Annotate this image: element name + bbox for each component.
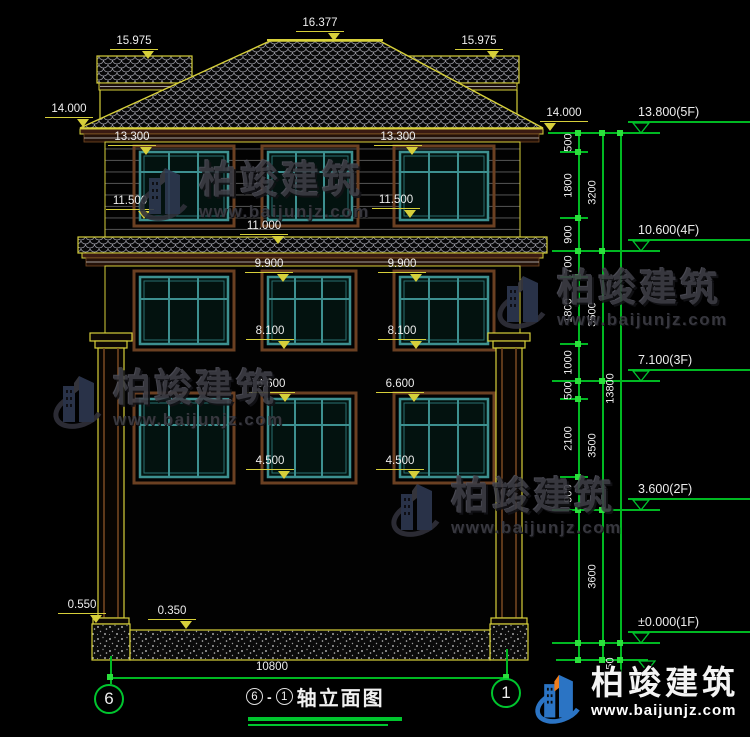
elevation-triangle-icon: [632, 122, 650, 134]
elevation-callout: 4.500: [376, 455, 424, 470]
watermark: 柏竣建筑www.baijunjz.com: [52, 366, 284, 436]
elevation-callout: 15.975: [455, 35, 503, 50]
elevation-callout: 4.500: [246, 455, 294, 470]
elevation-callout: 16.377: [296, 17, 344, 32]
watermark: 柏竣建筑www.baijunjz.com: [496, 266, 728, 336]
title-dash: -: [267, 689, 272, 705]
ground-slab: [130, 630, 490, 660]
baijun-logo-icon: [534, 664, 584, 732]
window: [134, 271, 234, 350]
elevation-callout: 8.100: [378, 325, 426, 340]
title-underline: [248, 724, 388, 726]
baijun-logo-icon: [52, 366, 106, 436]
drawing-title: 6 - 1 轴立面图: [246, 682, 385, 711]
elevation-callout: 8.100: [246, 325, 294, 340]
dim-tick: [575, 396, 581, 402]
elevation-callout: 9.900: [245, 258, 293, 273]
elevation-callout: 6.600: [376, 378, 424, 393]
elevation-triangle-icon: [632, 370, 650, 382]
title-underline: [248, 717, 402, 721]
dim-line: [620, 133, 622, 679]
baijun-logo-icon: [390, 474, 444, 544]
canopy: [78, 237, 547, 266]
grid-bubble-1: 1: [491, 678, 521, 708]
baijun-logo-icon: [138, 158, 192, 228]
dim-label: 500: [563, 369, 576, 413]
dim-label: 3600: [587, 555, 600, 599]
dim-label: 3500: [587, 424, 600, 468]
dim-tick: [575, 215, 581, 221]
watermark: 柏竣建筑www.baijunjz.com: [138, 158, 370, 228]
dim-tick: [575, 341, 581, 347]
dim-label: 500: [563, 121, 576, 165]
floor-elevation-marker: 13.800(5F): [578, 105, 750, 137]
floor-elevation-marker: 7.100(3F): [578, 353, 750, 385]
dim-tick: [107, 674, 113, 680]
axis-circle: 6: [246, 688, 263, 705]
cad-elevation-drawing: 16.377 15.975 15.975 14.000 14.000 13.30…: [0, 0, 750, 737]
dim-tick: [575, 149, 581, 155]
dim-label: 3200: [587, 171, 600, 215]
elevation-callout: 13.300: [108, 131, 156, 146]
title-text: 轴立面图: [297, 682, 385, 711]
elevation-callout: 0.350: [148, 605, 196, 620]
elevation-callout: 15.975: [110, 35, 158, 50]
brand-logo: 柏竣建筑www.baijunjz.com: [534, 664, 739, 732]
dim-tick: [575, 657, 581, 663]
elevation-callout: 0.550: [58, 599, 106, 614]
axis-circle: 1: [276, 688, 293, 705]
elevation-triangle-icon: [632, 499, 650, 511]
dim-label: 2100: [563, 417, 576, 461]
floor-elevation-marker: 10.600(4F): [578, 223, 750, 255]
dim-line: [110, 677, 507, 679]
elevation-callout: 9.900: [378, 258, 426, 273]
baijun-logo-icon: [496, 266, 550, 336]
dim-label: 1800: [563, 164, 576, 208]
span-dimension: 10800: [256, 661, 288, 673]
elevation-triangle-icon: [632, 632, 650, 644]
elevation-callout: 14.000: [45, 103, 93, 118]
watermark: 柏竣建筑www.baijunjz.com: [390, 474, 622, 544]
floor-elevation-marker: ±0.000(1F): [578, 615, 750, 647]
elevation-callout: 13.300: [374, 131, 422, 146]
elevation-triangle-icon: [632, 240, 650, 252]
elevation-callout: 11.500: [372, 194, 420, 209]
dim-line: [602, 133, 604, 662]
grid-bubble-6: 6: [94, 684, 124, 714]
